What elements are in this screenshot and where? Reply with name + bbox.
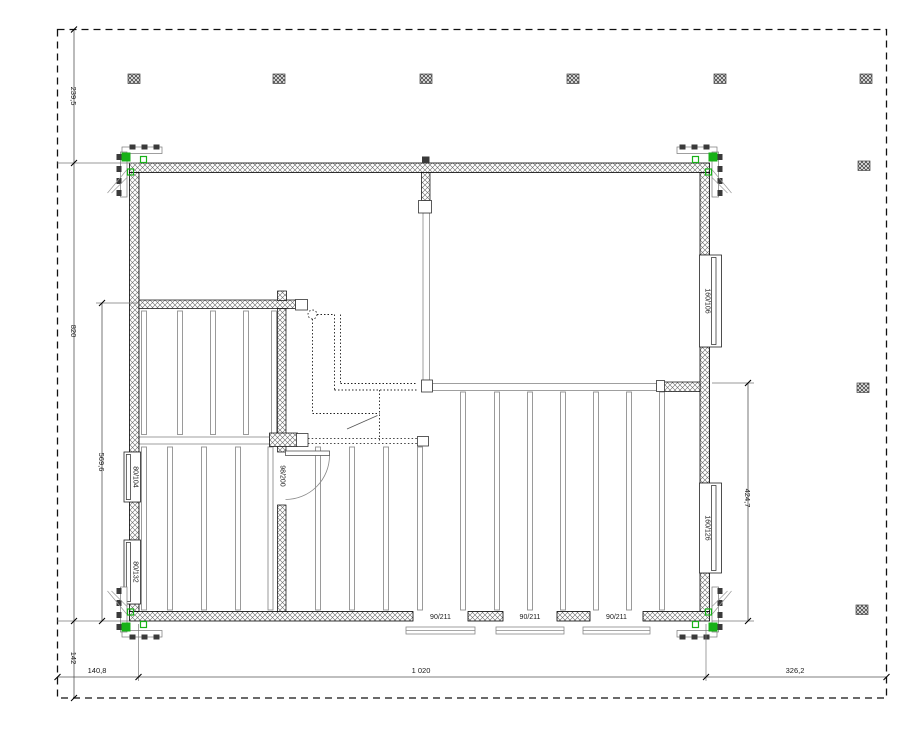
door-label-3: 90/211	[606, 614, 627, 621]
stair-opening-outline	[308, 310, 418, 441]
door-label-2: 90/211	[520, 614, 541, 621]
window-label-160-126: 160/126	[704, 515, 711, 540]
bottom-door-3: 90/211	[583, 614, 650, 634]
dim-label-326-2: 326,2	[786, 666, 805, 675]
window-label-160-106: 160/106	[704, 288, 711, 313]
floor-plan-svg: 98/200 80/104 80/132 160/106 160/126 90/…	[0, 0, 922, 729]
window-160-126: 160/126	[700, 483, 722, 573]
dim-label-569-6: 569,6	[97, 453, 106, 472]
extension-lines	[58, 163, 755, 681]
ridge-beams	[139, 213, 657, 444]
door-label-1: 90/211	[430, 614, 451, 621]
dim-label-142: 142	[69, 652, 78, 665]
wall-stub-cap	[422, 157, 430, 164]
dim-label-1020: 1 020	[412, 666, 431, 675]
dim-label-424-7: 424,7	[743, 489, 752, 508]
posts	[296, 201, 665, 447]
bottom-door-2: 90/211	[496, 614, 564, 634]
dim-label-239-5: 239,5	[69, 87, 78, 106]
window-label-80-132: 80/132	[132, 561, 139, 583]
stair-break-line	[347, 416, 378, 430]
floor-plan-drawing: 98/200 80/104 80/132 160/106 160/126 90/…	[0, 0, 922, 729]
interior-door: 98/200	[278, 451, 329, 500]
window-160-106: 160/106	[700, 255, 722, 347]
bottom-door-1: 90/211	[406, 614, 475, 634]
dim-label-820: 820	[69, 325, 78, 338]
interior-door-label: 98/200	[278, 465, 285, 487]
window-80-104: 80/104	[124, 452, 141, 502]
window-label-80-104: 80/104	[132, 466, 139, 488]
floor-joists	[142, 311, 665, 610]
hidden-beam-lines	[308, 439, 418, 444]
dim-label-140-8: 140,8	[88, 666, 107, 675]
